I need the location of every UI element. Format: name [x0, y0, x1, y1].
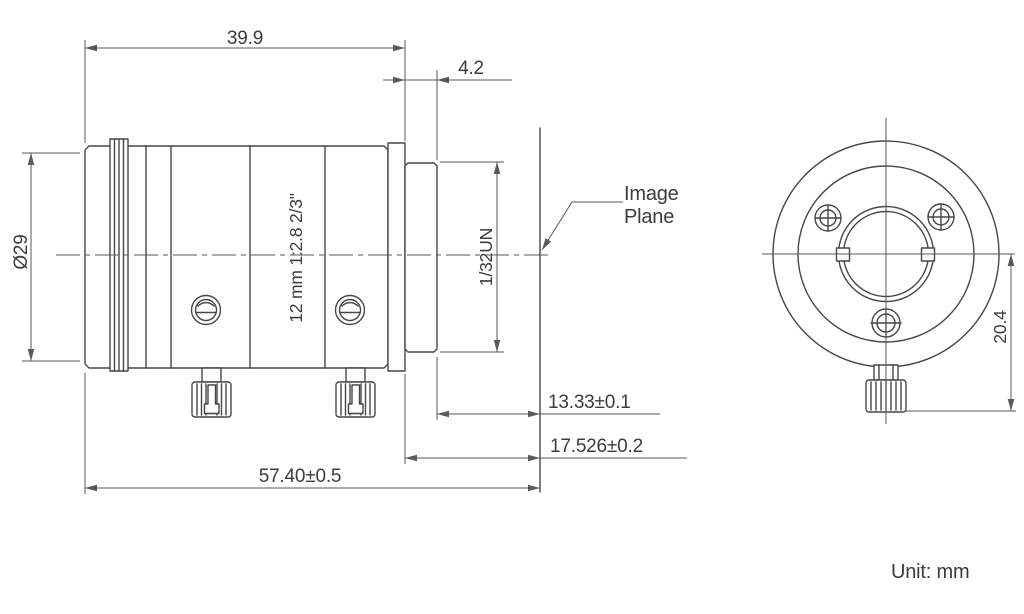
lens-spec-label: 12 mm 1:2.8 2/3" [286, 193, 306, 322]
lens-technical-drawing: 12 mm 1:2.8 2/3" Image Plane 39.9 4.2 [0, 0, 1024, 614]
image-plane-label-line2: Plane [624, 206, 674, 228]
dim-flange-focal-distance: 17.526±0.2 [405, 374, 687, 464]
rear-view: 20.4 [762, 118, 1016, 424]
dim-text-mount-thread: 1/32UN [476, 228, 496, 286]
dim-text-center-to-lock-screw: 20.4 [990, 310, 1010, 344]
unit-label: Unit: mm [891, 561, 969, 583]
dim-text-front-to-flange: 39.9 [227, 28, 263, 49]
dim-front-to-flange: 39.9 [85, 28, 405, 143]
image-plane-label-line1: Image [624, 183, 679, 205]
side-view: 12 mm 1:2.8 2/3" Image Plane 39.9 4.2 [11, 28, 687, 494]
mount-thread-barrel [405, 163, 437, 352]
dim-center-to-lock-screw: 20.4 [906, 254, 1016, 411]
lock-screw-left [192, 368, 231, 417]
lens-body-outline [85, 146, 388, 368]
dim-text-flange-focal-distance: 17.526±0.2 [550, 436, 643, 457]
lock-screw-right [336, 368, 375, 417]
lens-technical-drawing-page: 12 mm 1:2.8 2/3" Image Plane 39.9 4.2 [0, 0, 1024, 614]
set-screw-right [336, 296, 365, 325]
dim-outer-diameter: Ø29 [11, 153, 80, 361]
set-screw-left [192, 296, 221, 325]
dim-front-to-image-plane: 57.40±0.5 [85, 373, 540, 494]
image-plane-callout: Image Plane [539, 183, 678, 252]
rear-screw-top-right [928, 204, 954, 230]
flange-ring [388, 143, 405, 371]
rear-screw-top-left [815, 205, 841, 231]
dim-text-outer-diameter: Ø29 [11, 234, 32, 269]
dim-text-front-to-image-plane: 57.40±0.5 [259, 466, 342, 487]
dim-mount-thread: 1/32UN [440, 162, 504, 352]
dim-text-thread-length: 4.2 [458, 58, 484, 79]
dim-text-thread-to-image-plane: 13.33±0.1 [548, 392, 631, 413]
dim-thread-to-image-plane: 13.33±0.1 [437, 357, 660, 420]
